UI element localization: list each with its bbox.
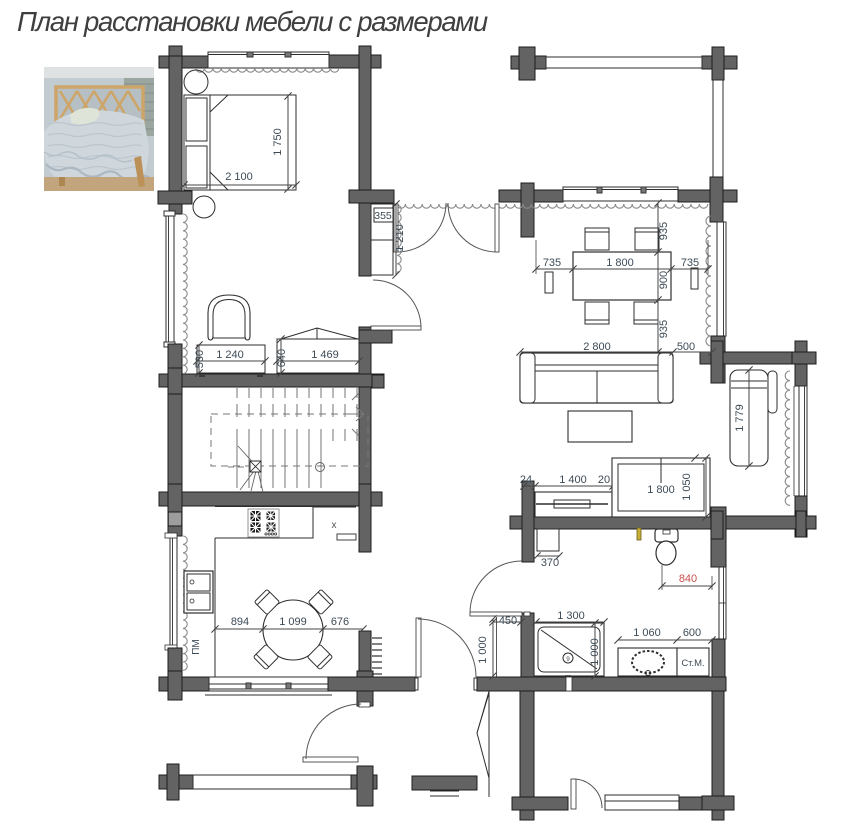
svg-text:355: 355	[374, 210, 392, 222]
svg-text:1 800: 1 800	[606, 257, 634, 269]
svg-text:20: 20	[598, 474, 610, 486]
svg-text:1 300: 1 300	[557, 610, 585, 622]
svg-text:24: 24	[520, 474, 532, 486]
svg-text:1 000: 1 000	[589, 638, 601, 666]
svg-text:840: 840	[679, 573, 697, 585]
svg-text:1 750: 1 750	[272, 128, 284, 156]
svg-text:1 779: 1 779	[734, 404, 746, 432]
svg-text:2 100: 2 100	[225, 171, 253, 183]
svg-text:500: 500	[677, 341, 695, 353]
svg-text:370: 370	[541, 557, 559, 569]
svg-text:894: 894	[231, 616, 249, 628]
svg-text:1 800: 1 800	[647, 484, 675, 496]
svg-text:x: x	[332, 520, 337, 531]
svg-text:План расстановки мебели с разм: План расстановки мебели с размерами	[17, 6, 488, 37]
svg-text:1 050: 1 050	[681, 473, 693, 501]
svg-text:1 210: 1 210	[394, 224, 406, 252]
svg-text:Ст.М.: Ст.М.	[681, 658, 704, 669]
svg-text:935: 935	[658, 320, 670, 338]
svg-text:450: 450	[499, 615, 517, 627]
svg-text:1 469: 1 469	[311, 349, 339, 361]
svg-text:1 000: 1 000	[477, 636, 489, 664]
svg-text:935: 935	[658, 222, 670, 240]
svg-text:1 060: 1 060	[633, 627, 661, 639]
svg-text:600: 600	[683, 627, 701, 639]
svg-text:ПМ: ПМ	[191, 639, 202, 655]
svg-text:1 099: 1 099	[279, 616, 307, 628]
svg-text:1 400: 1 400	[559, 474, 587, 486]
svg-text:900: 900	[658, 271, 670, 289]
svg-text:640: 640	[276, 349, 288, 367]
svg-text:530: 530	[194, 350, 206, 368]
svg-text:735: 735	[543, 257, 561, 269]
svg-text:676: 676	[331, 616, 349, 628]
svg-text:735: 735	[681, 257, 699, 269]
svg-text:1 240: 1 240	[216, 349, 244, 361]
svg-text:2 800: 2 800	[583, 341, 611, 353]
